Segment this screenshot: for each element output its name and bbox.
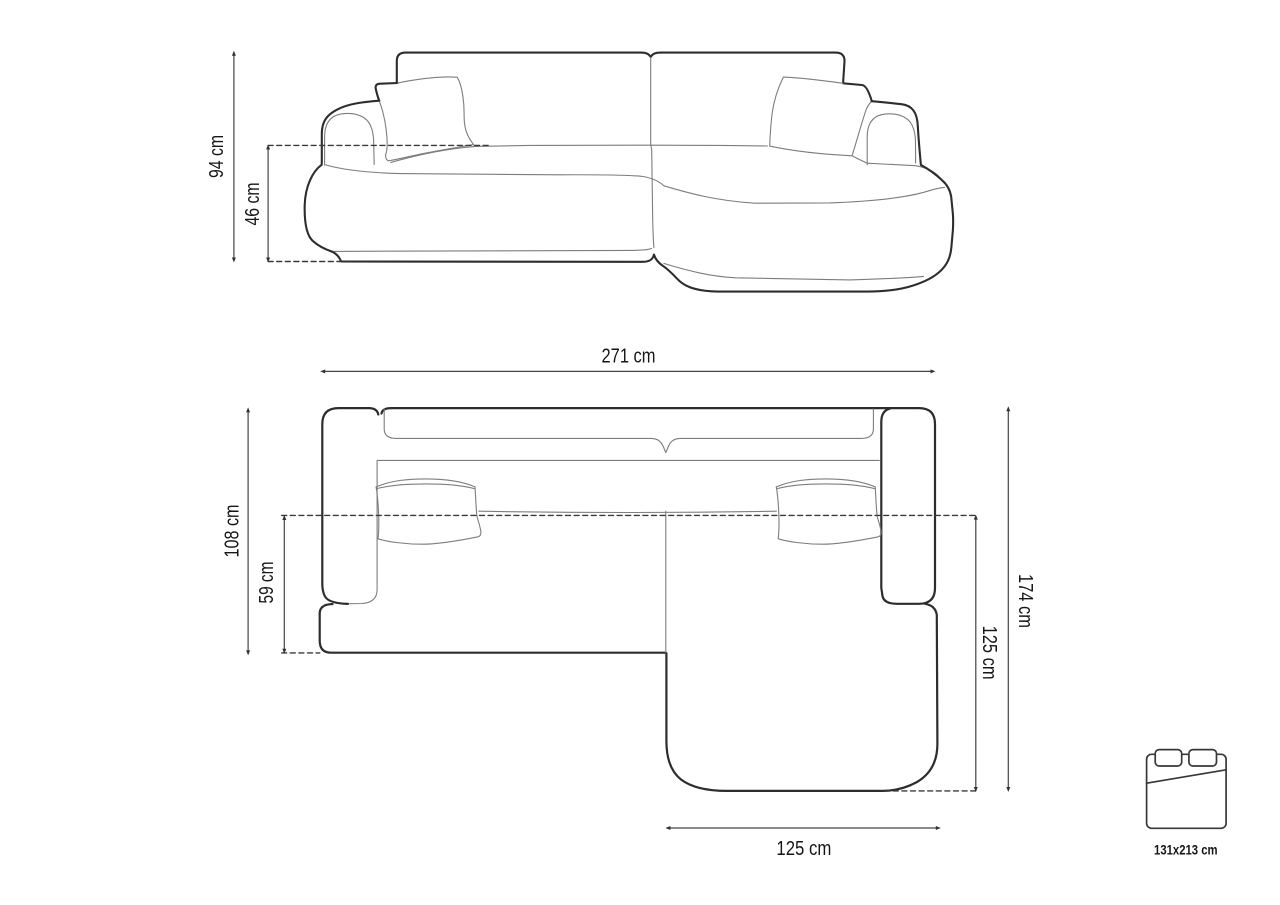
svg-text:59 cm: 59 cm: [255, 562, 278, 604]
svg-text:174 cm: 174 cm: [1014, 574, 1037, 628]
svg-text:108 cm: 108 cm: [221, 505, 244, 558]
svg-text:125 cm: 125 cm: [978, 626, 1001, 680]
svg-text:94 cm: 94 cm: [205, 135, 228, 178]
svg-text:131x213 cm: 131x213 cm: [1154, 842, 1218, 858]
svg-text:46 cm: 46 cm: [241, 182, 264, 225]
svg-text:271 cm: 271 cm: [602, 345, 656, 368]
svg-text:125 cm: 125 cm: [776, 837, 831, 860]
